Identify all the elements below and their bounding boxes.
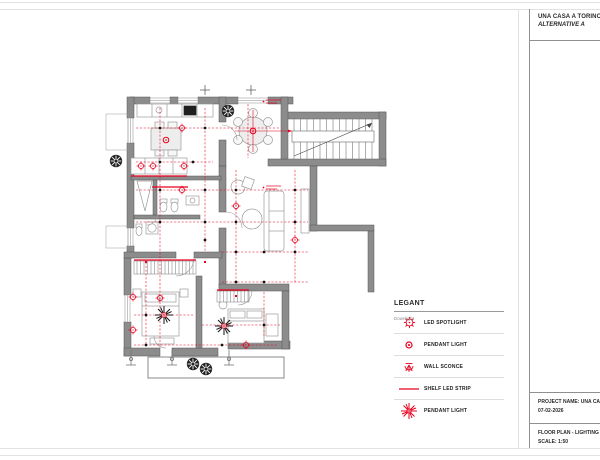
floor-plan-drawing — [0, 0, 600, 460]
legend-label: PENDANT LIGHT — [424, 408, 467, 414]
project-title: UNA CASA A TORINO — [538, 14, 600, 20]
project-name-line: PROJECT NAME: UNA CASA A T — [538, 399, 600, 405]
bidet — [171, 202, 178, 212]
stairs — [288, 119, 379, 159]
plant-icon — [187, 358, 199, 370]
legend-row: SHELF LED STRIP — [394, 378, 504, 400]
project-date: 07-02-2026 — [538, 408, 600, 414]
drawing-scale: SCALE: 1:50 — [538, 439, 600, 445]
legend-label: LED SPOTLIGHT — [424, 320, 467, 326]
project-title-cell: UNA CASA A TORINO ALTERNATIVE A — [530, 9, 600, 40]
shelf-led-strip-icon — [394, 386, 424, 392]
legend-row: PENDANT LIGHT — [394, 400, 504, 421]
legend-label: PENDANT LIGHT — [424, 342, 467, 348]
plant-icon — [200, 363, 212, 375]
legend-title: LEGANT — [394, 300, 504, 312]
sofa — [264, 191, 284, 251]
legend-label: SHELF LED STRIP — [424, 386, 471, 392]
stove-icon — [184, 106, 196, 115]
drawing-title-line: FLOOR PLAN - LIGHTING PLAN L — [538, 430, 600, 436]
shower — [137, 181, 152, 211]
legend: LEGANT Downlight LED SPOTLIGHT PENDANT L… — [394, 300, 504, 421]
title-block-column: UNA CASA A TORINO ALTERNATIVE A PROJECT … — [529, 9, 600, 448]
coffee-table — [242, 209, 262, 229]
kitchen-table — [151, 128, 181, 150]
chandelier-pendant-icon — [394, 402, 424, 420]
project-name-cell: PROJECT NAME: UNA CASA A T 07-02-2026 — [530, 392, 600, 423]
legend-row: PENDANT LIGHT — [394, 334, 504, 356]
cell-divider — [530, 423, 600, 424]
section-markers — [200, 85, 256, 95]
legend-row: WALL SCONCE — [394, 356, 504, 378]
drawing-title-cell: FLOOR PLAN - LIGHTING PLAN L SCALE: 1:50 — [530, 423, 600, 448]
project-alternative: ALTERNATIVE A — [538, 22, 600, 28]
sideboard — [301, 189, 309, 233]
pendant-light-icon — [394, 339, 424, 351]
toilet — [160, 202, 167, 212]
cell-divider — [530, 392, 600, 393]
legend-downlight-note: Downlight — [394, 316, 414, 321]
cell-divider — [530, 40, 600, 41]
wall-sconce-icon — [394, 360, 424, 374]
legend-label: WALL SCONCE — [424, 364, 463, 370]
